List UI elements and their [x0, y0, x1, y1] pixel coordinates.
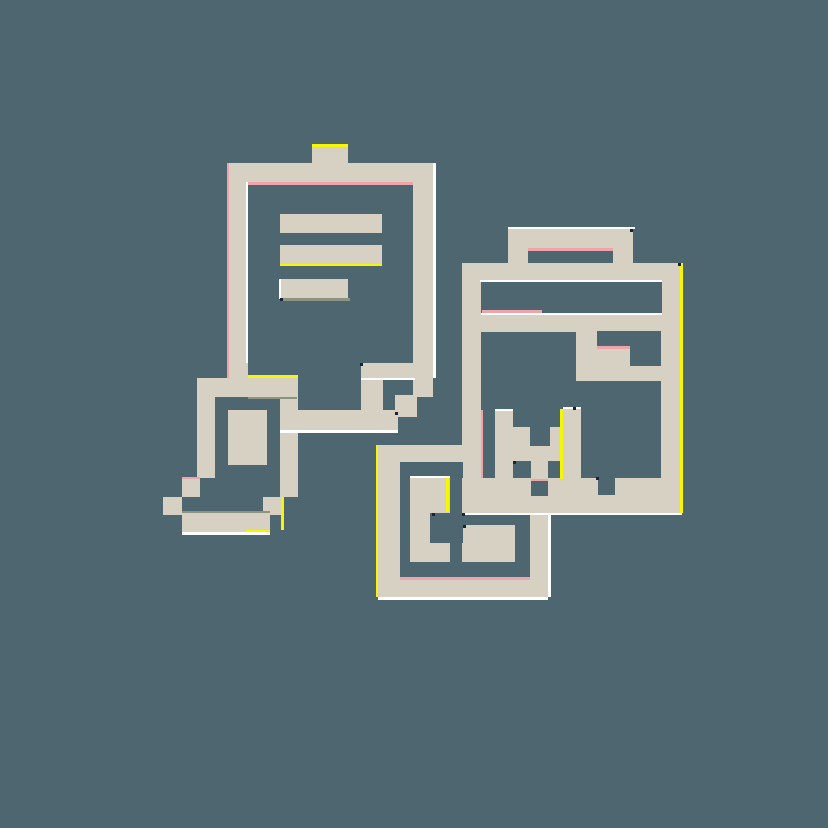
icon-glitch-line-pink: [528, 248, 613, 251]
icon-hole-rect: [400, 562, 530, 577]
icon-glitch-line-white: [480, 280, 662, 282]
icon-corner-dot: [360, 363, 363, 366]
icon-corner-dot: [395, 412, 398, 415]
icon-corner-dot: [280, 298, 283, 301]
icon-glitch-line-gray: [182, 511, 270, 513]
icon-shape-rect: [163, 497, 182, 515]
icon-shape-rect: [613, 229, 633, 263]
screenshot-root: [0, 0, 828, 828]
icon-hole-rect: [531, 479, 548, 496]
icon-glitch-line-pink: [400, 577, 530, 580]
icon-glitch-line-yellow: [446, 478, 449, 512]
icon-glitch-line-white: [462, 513, 682, 515]
icon-glitch-line-white: [508, 227, 635, 229]
icon-corner-dot: [630, 229, 633, 232]
icon-glitch-line-yellow: [680, 263, 683, 513]
icon-hole-rect: [530, 332, 550, 446]
icon-detail-rect: [228, 410, 267, 465]
icon-glitch-line-white: [378, 597, 548, 600]
icon-glitch-line-pink: [481, 410, 483, 478]
icon-glitch-line-white: [410, 476, 450, 478]
icon-hole-rect: [495, 332, 513, 411]
icon-glitch-line-yellow: [312, 144, 348, 147]
icon-glitch-line-pink: [531, 479, 548, 481]
icon-glitch-line-gray: [283, 298, 350, 301]
icon-glitch-line-pink: [227, 163, 229, 378]
icon-glitch-line-white: [433, 163, 436, 378]
icon-hole-rect: [581, 409, 661, 478]
icon-hole-rect: [430, 525, 463, 543]
icon-glitch-line-yellow: [281, 497, 284, 530]
icon-hole-rect: [481, 282, 662, 313]
icon-glitch-line-white: [280, 430, 398, 433]
icon-corner-dot: [573, 407, 576, 410]
icon-glitch-line-pink: [182, 477, 200, 479]
icon-hole-rect: [563, 332, 576, 409]
icon-detail-rect: [280, 279, 348, 299]
icon-glitch-line-white: [279, 279, 281, 299]
icon-glitch-line-yellow: [376, 445, 378, 597]
icon-hole-rect: [248, 182, 413, 363]
icon-shape-rect: [508, 229, 528, 263]
icon-shape-rect: [395, 395, 417, 417]
icon-corner-dot: [463, 525, 466, 528]
icon-hole-rect: [481, 332, 495, 478]
icon-corner-dot: [678, 263, 681, 266]
icon-shape-rect: [182, 478, 200, 497]
icon-glitch-line-white: [361, 378, 415, 380]
icon-glitch-line-yellow: [560, 409, 563, 479]
icon-glitch-line-white: [182, 532, 270, 535]
icon-hole-rect: [630, 349, 661, 366]
icon-glitch-line-white: [563, 407, 581, 409]
icon-glitch-line-gray: [248, 397, 297, 399]
pixel-clipboards-icon: [0, 0, 828, 828]
icon-glitch-line-pink: [248, 182, 413, 185]
icon-detail-rect: [280, 245, 382, 265]
icon-detail-rect: [280, 214, 382, 233]
icon-glitch-line-white: [481, 313, 662, 315]
icon-corner-dot: [596, 477, 599, 480]
icon-glitch-line-white: [495, 409, 513, 411]
icon-corner-dot: [432, 513, 435, 516]
icon-glitch-line-yellow: [280, 264, 382, 266]
icon-corner-dot: [462, 513, 465, 516]
icon-corner-dot: [513, 461, 516, 464]
icon-glitch-line-pink: [597, 346, 630, 349]
icon-hole-rect: [513, 332, 530, 427]
icon-hole-rect: [598, 478, 615, 495]
icon-hole-rect: [576, 381, 661, 409]
icon-glitch-line-yellow: [248, 375, 298, 378]
icon-hole-rect: [515, 525, 530, 562]
icon-glitch-line-white: [246, 182, 248, 363]
icon-glitch-line-white: [548, 513, 551, 597]
icon-shape-rect: [197, 378, 215, 478]
icon-shape-rect: [280, 378, 298, 497]
